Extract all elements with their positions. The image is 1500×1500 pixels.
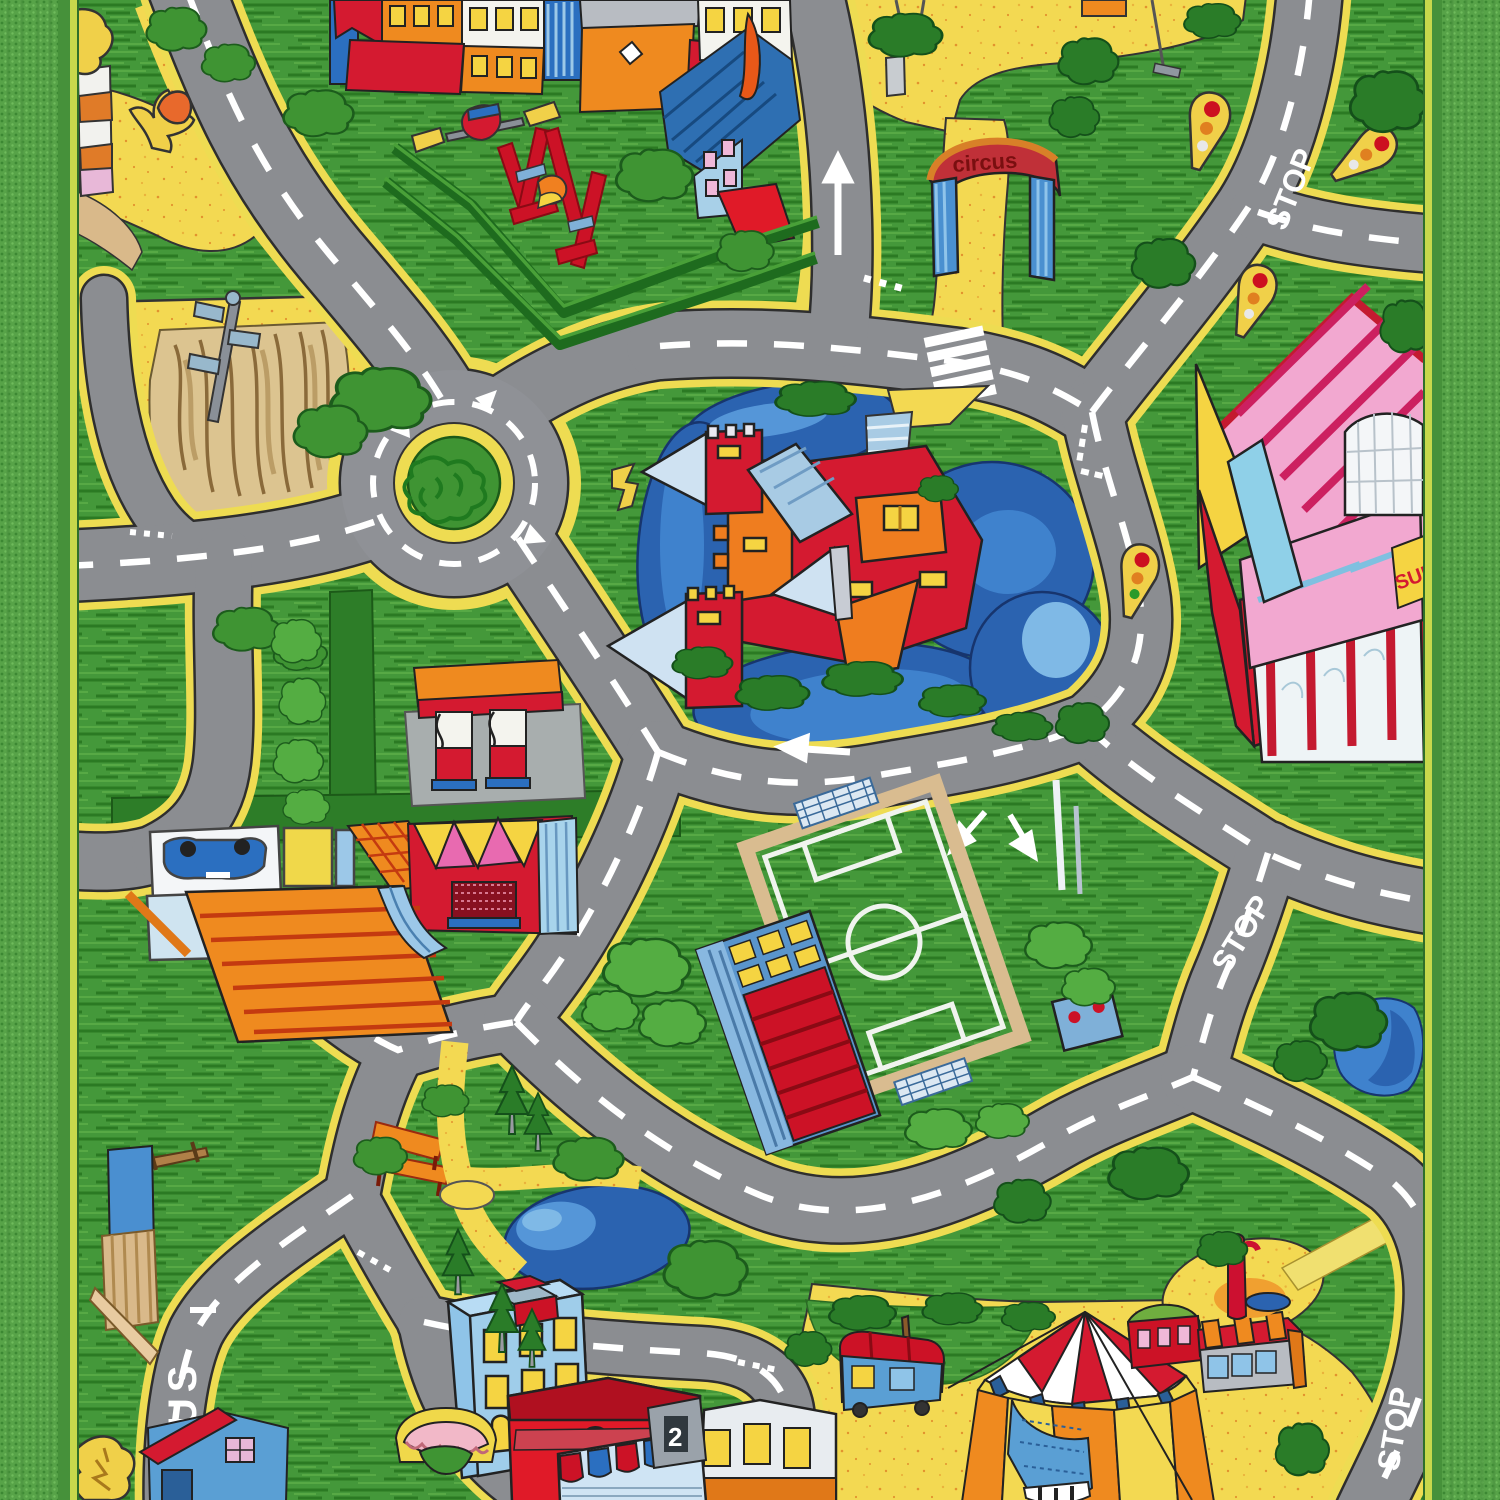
svg-text:2: 2 [668,1422,682,1452]
svg-text:circus: circus [952,148,1018,177]
